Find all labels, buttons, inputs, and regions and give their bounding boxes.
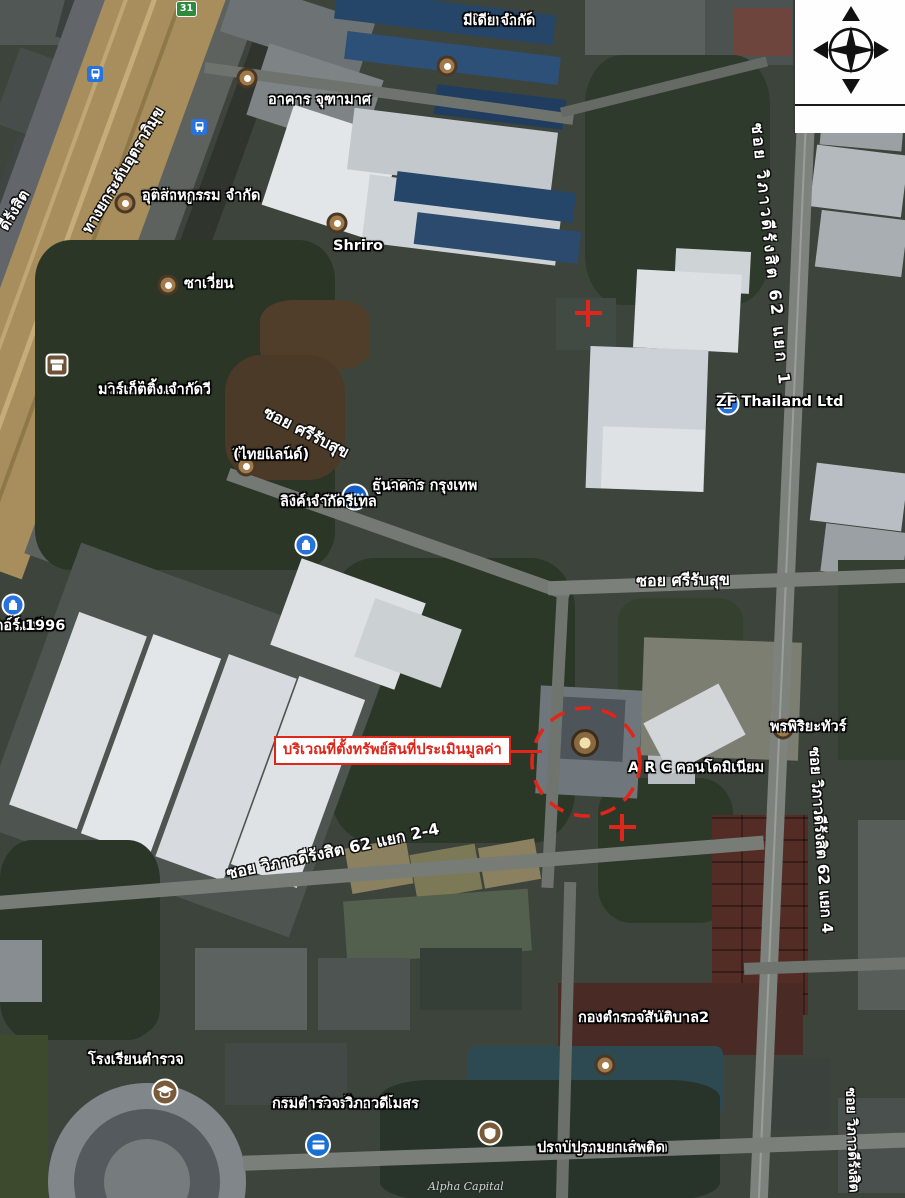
poi-label-line: ลิงค์ จำกัด (280, 494, 346, 511)
poi-label-line: พรพิริยะทัวร์ (770, 719, 846, 736)
map-texture-shape (485, 1127, 496, 1139)
poi-label-line: (ไทยแลนด์) (233, 447, 309, 464)
map-texture-shape (92, 71, 97, 74)
road-label: ซอย วิภาวดีรังสิต 62 แยก 4 (803, 746, 840, 934)
map-texture-shape (8, 600, 19, 611)
map-texture-shape (318, 958, 410, 1030)
atm-card-icon[interactable] (305, 1132, 331, 1158)
poi-label-line: อาคาร จุฑามาศ (268, 92, 371, 109)
map-texture-shape (195, 122, 204, 132)
map-texture-shape (810, 463, 905, 532)
poi-label-line: กรมตำรวจ วิภาวดี (272, 1096, 389, 1113)
poi-dot-icon[interactable] (595, 1055, 616, 1076)
poi-label-line: โรงเรียนตำรวจ (88, 1052, 184, 1069)
poi-dot-icon[interactable] (237, 68, 258, 89)
poi-label-line: ZF Thailand Ltd (716, 394, 844, 411)
map-texture-shape (91, 69, 100, 79)
map-texture-shape (874, 41, 889, 59)
map-texture-shape (10, 600, 17, 609)
route-shield-31: 31 (176, 1, 197, 17)
bus-stop-icon[interactable] (87, 66, 103, 82)
compass-panel-divider (795, 104, 905, 106)
map-texture-shape (157, 1086, 174, 1094)
road-label: ซอย ศรีรับสุข (636, 568, 730, 595)
map-texture-shape (0, 940, 42, 1002)
map-texture-shape (195, 948, 307, 1030)
poi-label-line: ปราบปรามยาเสพติด (537, 1140, 665, 1157)
map-texture-shape (0, 1035, 48, 1198)
crosshair-mark (575, 300, 602, 327)
police-badge-icon[interactable] (478, 1121, 503, 1146)
map-texture-shape (838, 560, 905, 760)
map-texture-shape (157, 1086, 174, 1099)
poi-label-line: มาร์เก็ตติ้ง จำกัด (98, 382, 203, 399)
map-texture-shape (52, 365, 62, 371)
map-texture-shape (312, 1140, 325, 1150)
poi-dot-icon[interactable] (437, 56, 458, 77)
map-texture-shape (813, 41, 828, 59)
storefront-icon[interactable] (46, 354, 69, 377)
map-texture-shape (51, 360, 64, 371)
map-texture-shape (444, 63, 451, 70)
map-texture-shape (312, 1141, 324, 1150)
target-dashed-circle (526, 702, 646, 822)
poi-label-line: อุตสาหกรรม จำกัด (142, 188, 260, 205)
map-texture-shape (92, 77, 94, 79)
map-texture-shape (485, 1127, 496, 1139)
bus-stop-icon[interactable] (191, 119, 207, 135)
poi-dot-icon[interactable] (158, 275, 179, 296)
map-texture-shape (601, 426, 705, 492)
map-texture-shape (196, 124, 201, 127)
map-texture-shape (312, 1143, 324, 1145)
map-texture-shape (768, 1058, 830, 1130)
watermark: Alpha Capital (428, 1180, 504, 1193)
satellite-map: 31 บริเวณที่ตั้งทรัพย์สินที่ประเมินมูลค่… (0, 0, 905, 1198)
map-texture-shape (842, 79, 860, 94)
map-texture-shape (815, 210, 905, 277)
map-texture-shape (733, 8, 791, 56)
map-texture-shape (810, 145, 905, 218)
map-texture-shape (420, 948, 522, 1010)
map-texture-shape (96, 77, 98, 79)
map-texture-shape (842, 6, 860, 21)
map-texture-shape (165, 282, 172, 289)
shopping-bag-icon[interactable] (295, 534, 318, 557)
poi-label-line: กองตำรวจสันติบาล2 (578, 1010, 709, 1027)
map-texture-shape (196, 130, 198, 132)
map-texture-shape (334, 220, 341, 227)
map-texture-shape (122, 200, 129, 207)
map-texture-shape (602, 1062, 609, 1069)
compass-rose-icon (795, 0, 905, 104)
crosshair-mark (609, 814, 636, 841)
compass-panel (793, 0, 905, 133)
map-texture-shape (633, 269, 742, 352)
map-texture-shape (858, 820, 905, 1010)
poi-label-line: A R C คอนโดมิเนียม (628, 760, 764, 777)
map-texture-shape (532, 708, 640, 816)
road-label: ซอย วิภาวดีรังสิต (839, 1087, 865, 1193)
map-texture-shape (244, 75, 251, 82)
map-texture-shape (200, 130, 202, 132)
poi-dot-icon[interactable] (115, 193, 136, 214)
map-texture-shape (585, 0, 705, 55)
map-texture-shape (301, 540, 312, 551)
poi-dot-icon[interactable] (327, 213, 348, 234)
map-texture-shape (303, 540, 310, 549)
map-texture-shape (51, 360, 64, 364)
poi-label-line: ซาเวี่ยน (184, 276, 234, 293)
poi-label-line: ธนาคาร กรุงเทพ (372, 478, 477, 495)
annotation-box: บริเวณที่ตั้งทรัพย์สินที่ประเมินมูลค่า (274, 736, 511, 765)
map-texture-shape (827, 26, 875, 74)
graduation-cap-icon[interactable] (152, 1079, 179, 1106)
shopping-bag-icon[interactable] (2, 594, 25, 617)
poi-label-line: ดอร์ 1996 (0, 618, 65, 635)
map-texture-shape (45, 900, 160, 1035)
poi-label-line: มีเดีย จำกัด (463, 13, 535, 30)
poi-label-line: Shriro (333, 238, 383, 255)
